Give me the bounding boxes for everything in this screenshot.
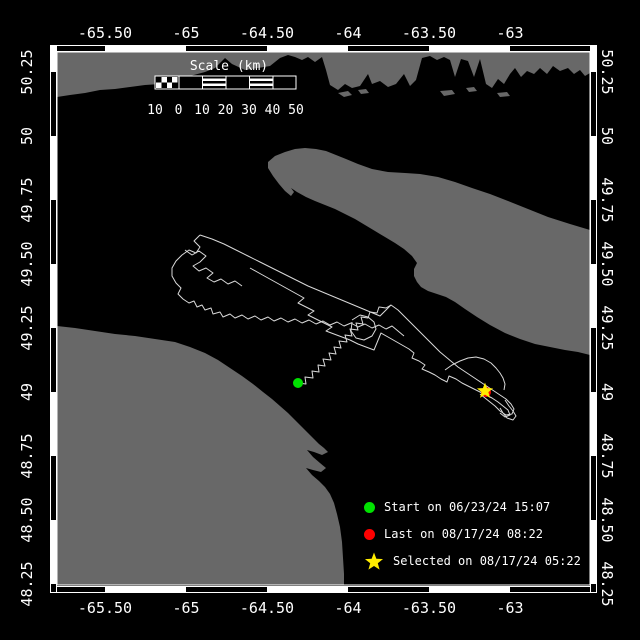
frame-seg xyxy=(591,328,596,392)
x-tick-label-bottom: -65 xyxy=(172,599,199,617)
y-tick-label-left: 50 xyxy=(18,127,36,145)
y-tick-label-left: 48.25 xyxy=(18,561,36,606)
scalebar-label: 30 xyxy=(241,103,257,118)
scalebar-divider xyxy=(273,76,274,89)
scalebar-label: 40 xyxy=(265,103,281,118)
frame-seg xyxy=(51,328,56,392)
legend-label: Selected on 08/17/24 05:22 xyxy=(393,554,581,568)
legend-label: Start on 06/23/24 15:07 xyxy=(384,500,550,514)
y-tick-label-right: 50 xyxy=(598,127,616,145)
legend-item: Last on 08/17/24 08:22 xyxy=(364,525,543,543)
scalebar-divider xyxy=(179,76,180,89)
map-canvas[interactable] xyxy=(0,0,640,640)
scalebar-checker-cell xyxy=(172,83,177,89)
frame-seg xyxy=(591,200,596,264)
scalebar-checker-cell xyxy=(156,83,161,89)
y-tick-label-right: 49.50 xyxy=(598,241,616,286)
scalebar-checker-cell xyxy=(172,77,177,83)
scalebar-checker-cell xyxy=(167,83,172,89)
x-tick-label-bottom: -64.50 xyxy=(240,599,294,617)
legend-circle-icon xyxy=(364,529,375,540)
y-tick-label-right: 50.25 xyxy=(598,49,616,94)
scalebar-stripe xyxy=(202,84,226,87)
y-tick-label-left: 48.50 xyxy=(18,497,36,542)
y-tick-label-left: 49 xyxy=(18,383,36,401)
frame-seg xyxy=(348,46,429,51)
y-tick-label-left: 49.25 xyxy=(18,305,36,350)
x-tick-label-top: -63.50 xyxy=(402,24,456,42)
x-tick-label-bottom: -63 xyxy=(496,599,523,617)
frame-seg xyxy=(348,587,429,592)
scalebar-stripe xyxy=(249,79,273,82)
x-tick-label-top: -64.50 xyxy=(240,24,294,42)
frame-seg xyxy=(591,456,596,520)
legend-star-icon xyxy=(364,551,384,571)
scalebar-checker-cell xyxy=(167,77,172,83)
scalebar-stripe xyxy=(202,79,226,82)
scalebar-label: 50 xyxy=(288,103,304,118)
frame-seg xyxy=(510,46,590,51)
scalebar-label: 10 xyxy=(194,103,210,118)
x-tick-label-top: -65.50 xyxy=(78,24,132,42)
legend-item: Start on 06/23/24 15:07 xyxy=(364,498,550,516)
scalebar-stripe xyxy=(249,84,273,87)
frame-seg xyxy=(57,587,105,592)
scalebar-label: 10 xyxy=(147,103,163,118)
frame-seg xyxy=(591,72,596,136)
scalebar xyxy=(155,76,296,89)
scalebar-label: 0 xyxy=(175,103,183,118)
x-tick-label-top: -63 xyxy=(496,24,523,42)
x-tick-label-bottom: -65.50 xyxy=(78,599,132,617)
frame-seg xyxy=(510,587,590,592)
y-tick-label-right: 48.50 xyxy=(598,497,616,542)
y-tick-label-left: 48.75 xyxy=(18,433,36,478)
frame-seg xyxy=(186,587,267,592)
scalebar-divider xyxy=(202,76,203,89)
y-tick-label-right: 48.25 xyxy=(598,561,616,606)
y-tick-label-right: 48.75 xyxy=(598,433,616,478)
y-tick-label-right: 49.25 xyxy=(598,305,616,350)
scalebar-divider xyxy=(249,76,250,89)
y-tick-label-left: 49.75 xyxy=(18,177,36,222)
frame-seg xyxy=(51,200,56,264)
y-tick-label-left: 50.25 xyxy=(18,49,36,94)
x-tick-label-top: -64 xyxy=(334,24,361,42)
scalebar-checker-cell xyxy=(156,77,161,83)
frame-seg xyxy=(51,584,56,592)
scalebar-label: 20 xyxy=(218,103,234,118)
scalebar-checker-cell xyxy=(161,77,166,83)
legend-circle-icon xyxy=(364,502,375,513)
y-tick-label-right: 49.75 xyxy=(598,177,616,222)
legend-item: Selected on 08/17/24 05:22 xyxy=(364,552,581,570)
frame-seg xyxy=(51,72,56,136)
scalebar-title: Scale (km) xyxy=(190,59,268,74)
y-tick-label-right: 49 xyxy=(598,383,616,401)
scalebar-divider xyxy=(226,76,227,89)
x-tick-label-top: -65 xyxy=(172,24,199,42)
map-window: Scale (km) -65.50-65.50-65-65-64.50-64.5… xyxy=(0,0,640,640)
frame-seg xyxy=(57,46,105,51)
frame-seg xyxy=(186,46,267,51)
start-marker[interactable] xyxy=(293,378,303,388)
y-tick-label-left: 49.50 xyxy=(18,241,36,286)
scalebar-checker-cell xyxy=(161,83,166,89)
x-tick-label-bottom: -64 xyxy=(334,599,361,617)
legend-label: Last on 08/17/24 08:22 xyxy=(384,527,543,541)
frame-seg xyxy=(591,584,596,592)
x-tick-label-bottom: -63.50 xyxy=(402,599,456,617)
frame-seg xyxy=(51,456,56,520)
